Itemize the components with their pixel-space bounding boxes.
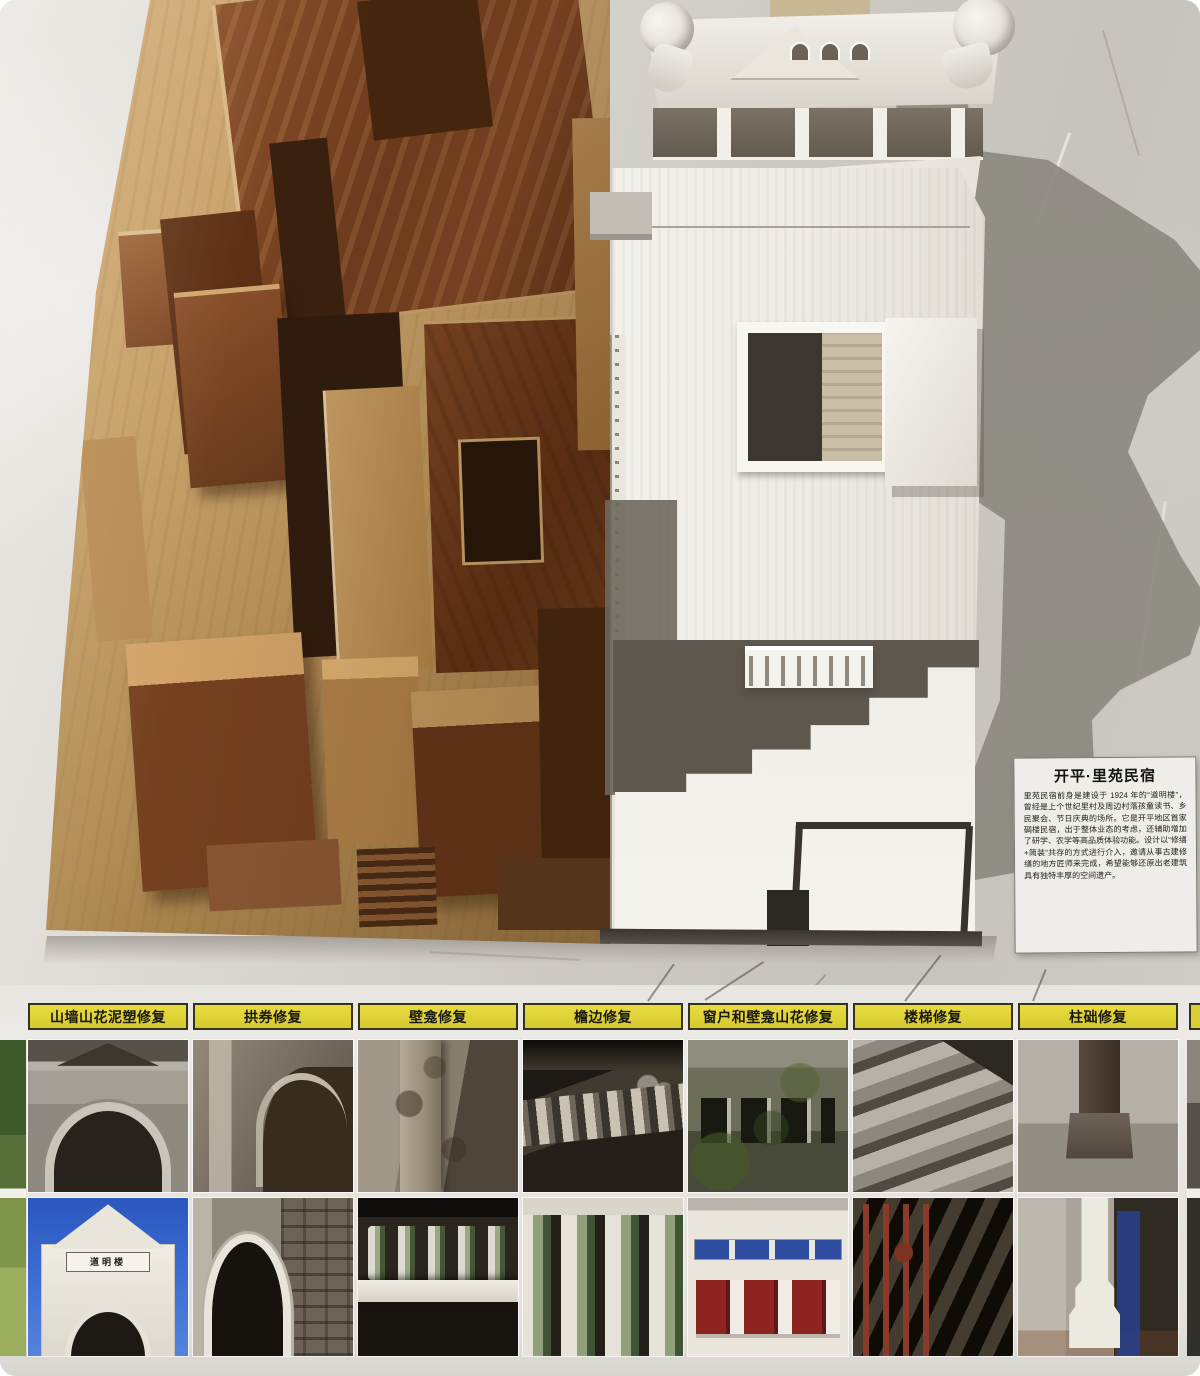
white-diaolou-model <box>585 0 1015 960</box>
restoration-column-gable: 山墙山花泥塑修复 道明楼 <box>28 1003 188 1356</box>
photo-before-window <box>688 1040 848 1192</box>
small-balcony <box>745 646 873 688</box>
restoration-label: 山墙山花泥塑修复 <box>28 1003 188 1030</box>
side-wing-slab <box>885 318 977 486</box>
photo-after-gable: 道明楼 <box>28 1198 188 1356</box>
photo-after-window <box>688 1198 848 1356</box>
card-body: 里苑民宿前身是建设于 1924 年的“道明楼”，曾经是上个世纪里村及周边村落孩童… <box>1024 789 1188 881</box>
photo-after-plinth <box>1018 1198 1178 1356</box>
restoration-column-window: 窗户和壁龛山花修复 <box>688 1003 848 1356</box>
restoration-column-plinth: 柱础修复 <box>1018 1003 1178 1356</box>
restoration-label: 楼梯修复 <box>853 1003 1013 1030</box>
gate-plaque: 道明楼 <box>66 1252 149 1273</box>
restoration-column-stair: 楼梯修复 <box>853 1003 1013 1356</box>
photo-sliver-left <box>0 1040 26 1356</box>
card-title: 开平·里苑民宿 <box>1023 764 1186 786</box>
restoration-label: 柱础修复 <box>1018 1003 1178 1030</box>
exhibition-wall-photo: 开平·里苑民宿 里苑民宿前身是建设于 1924 年的“道明楼”，曾经是上个世纪里… <box>0 0 1200 1376</box>
window-opening <box>737 322 893 472</box>
photo-sliver-right <box>1187 1040 1200 1356</box>
photo-before-gable <box>28 1040 188 1192</box>
photo-before-plinth <box>1018 1040 1178 1192</box>
arch-window <box>850 42 870 60</box>
photo-after-arch <box>193 1198 353 1356</box>
photo-before-stair <box>853 1040 1013 1192</box>
restoration-column-niche: 壁龛修复 <box>358 1003 518 1356</box>
recessed-balcony-band <box>653 108 983 160</box>
gate-arch <box>71 1312 145 1356</box>
restoration-columns: 山墙山花泥塑修复 道明楼 拱券修复 壁龛修复 檐边修复 <box>28 1003 1178 1356</box>
restoration-column-eave: 檐边修复 <box>523 1003 683 1356</box>
photo-after-stair <box>853 1198 1013 1356</box>
photo-before-eave <box>523 1040 683 1192</box>
restoration-label: 壁龛修复 <box>358 1003 518 1030</box>
photo-after-eave <box>523 1198 683 1356</box>
restoration-column-arch: 拱券修复 <box>193 1003 353 1356</box>
left-ledge <box>590 192 652 240</box>
arch-window <box>820 42 840 60</box>
photo-after-niche <box>358 1198 518 1356</box>
info-card: 开平·里苑民宿 里苑民宿前身是建设于 1924 年的“道明楼”，曾经是上个世纪里… <box>1013 756 1197 953</box>
restoration-label: 檐边修复 <box>523 1003 683 1030</box>
arch-window <box>790 42 810 60</box>
model-base-edge <box>600 929 982 947</box>
photo-before-arch <box>193 1040 353 1192</box>
restoration-label: 拱券修复 <box>193 1003 353 1030</box>
photo-before-niche <box>358 1040 518 1192</box>
railing-frame <box>790 822 971 940</box>
restoration-label: 窗户和壁龛山花修复 <box>688 1003 848 1030</box>
label-sliver-right <box>1189 1003 1200 1030</box>
restoration-photo-board: 山墙山花泥塑修复 道明楼 拱券修复 壁龛修复 檐边修复 <box>0 985 1200 1376</box>
